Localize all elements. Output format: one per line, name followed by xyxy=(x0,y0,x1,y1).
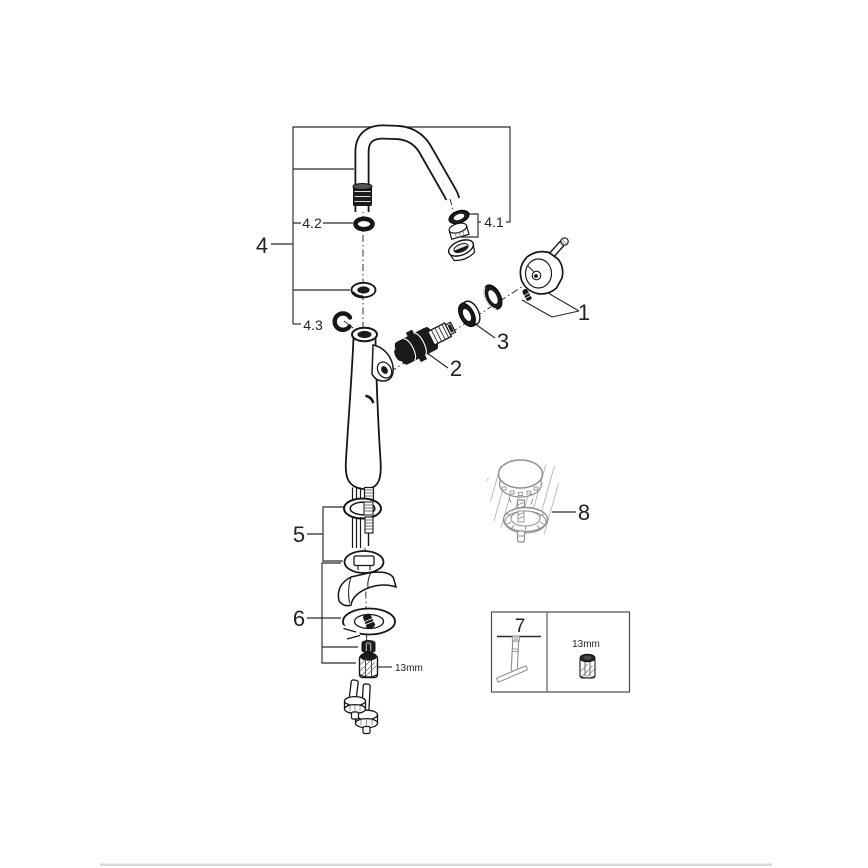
mounting-nut xyxy=(362,640,376,653)
footer-divider xyxy=(100,864,772,867)
label-part6: 6 xyxy=(293,606,305,631)
label-part2: 2 xyxy=(450,356,462,381)
aerator-assembly xyxy=(446,208,477,264)
bearing-ring xyxy=(352,283,376,297)
bracket-part5 xyxy=(307,507,345,561)
label-socket-size: 13mm xyxy=(572,639,600,650)
label-part8: 8 xyxy=(578,500,590,525)
aerator-housing xyxy=(446,237,477,264)
label-part4-2: 4.2 xyxy=(302,215,322,231)
label-part4: 4 xyxy=(256,233,268,258)
socket-13mm xyxy=(580,654,595,678)
supply-hoses xyxy=(345,680,378,734)
label-part5: 5 xyxy=(293,522,305,547)
label-part7: 7 xyxy=(515,616,526,637)
tool-box xyxy=(492,612,630,692)
label-part1: 1 xyxy=(578,300,590,325)
diagram-canvas: 4 4.2 4.1 4.3 1 2 3 5 6 8 7 13mm 13mm xyxy=(0,0,868,868)
drain-plug-assembly xyxy=(470,450,577,542)
o-ring xyxy=(356,219,373,229)
shank-and-base xyxy=(344,488,384,574)
label-part3: 3 xyxy=(497,329,509,354)
mounting-clamp xyxy=(338,572,396,606)
mounting-rings xyxy=(455,282,505,329)
retaining-clip xyxy=(335,313,350,329)
long-nut-13mm xyxy=(360,653,378,678)
spout xyxy=(353,132,453,212)
horseshoe-washer xyxy=(336,609,395,644)
stabilizer-gasket xyxy=(345,551,384,573)
label-part4-1: 4.1 xyxy=(484,214,504,230)
exploded-parts-diagram: 4 4.2 4.1 4.3 1 2 3 5 6 8 7 13mm 13mm xyxy=(0,0,868,868)
handle xyxy=(520,238,568,301)
label-nut-size: 13mm xyxy=(395,663,423,674)
faucet-body xyxy=(346,328,395,489)
plug-cap xyxy=(499,460,543,488)
mounting-hardware xyxy=(336,572,396,677)
label-part4-3: 4.3 xyxy=(303,317,323,333)
